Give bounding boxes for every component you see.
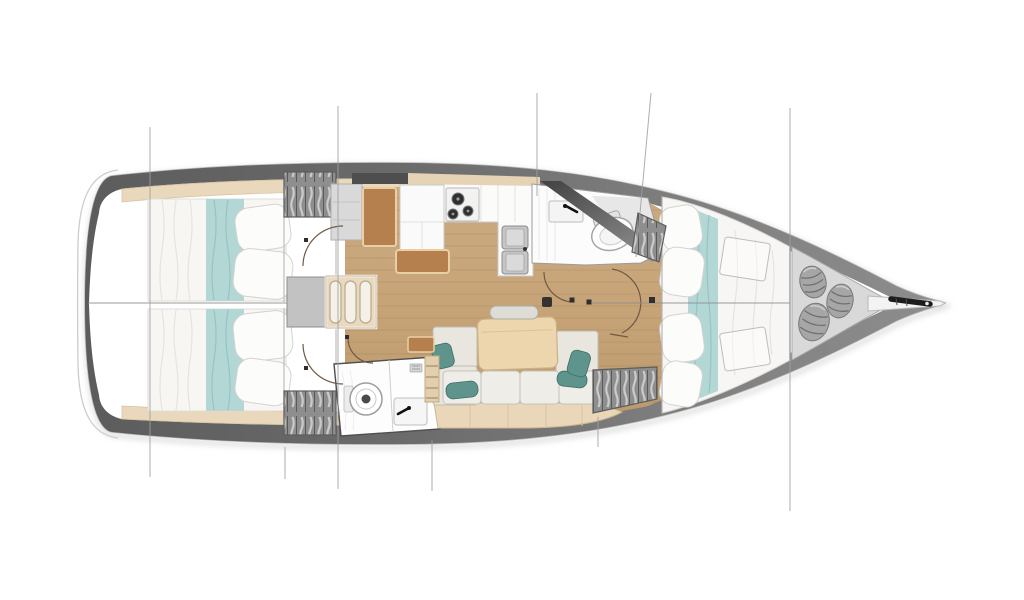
nav-bulkhead-panel xyxy=(331,184,362,240)
hinge-mark xyxy=(587,300,592,305)
engine-box xyxy=(287,277,326,327)
head-sink xyxy=(394,398,427,425)
hinge-mark xyxy=(304,238,308,242)
salon-table xyxy=(477,317,558,371)
nav-seat xyxy=(396,250,449,273)
stove-icon xyxy=(446,188,479,221)
hinge-mark xyxy=(649,297,655,303)
side-locker-brown xyxy=(408,337,434,352)
yacht-floorplan-image xyxy=(0,0,1024,600)
chart-table xyxy=(363,188,396,246)
hinge-mark xyxy=(570,298,575,303)
hinge-mark xyxy=(345,335,349,339)
hinge-mark xyxy=(304,366,308,370)
wardrobe-aft-starboard xyxy=(284,391,336,435)
step-treads xyxy=(330,281,371,323)
mast-step-icon xyxy=(542,297,552,307)
companionway-steps xyxy=(287,276,376,328)
aft-cabin-port xyxy=(148,199,294,301)
faucet-dot xyxy=(523,247,527,251)
ce-marking-badge xyxy=(410,364,422,372)
cockpit-sill-dark xyxy=(352,173,408,184)
aft-cabin-starboard xyxy=(148,309,294,411)
salon-bench xyxy=(490,306,538,319)
cabin-ladder xyxy=(425,356,439,402)
wardrobe-aft-port xyxy=(284,172,336,217)
floorplan-svg xyxy=(0,0,1024,600)
aft-head xyxy=(334,357,440,436)
toilet-icon xyxy=(344,383,382,415)
